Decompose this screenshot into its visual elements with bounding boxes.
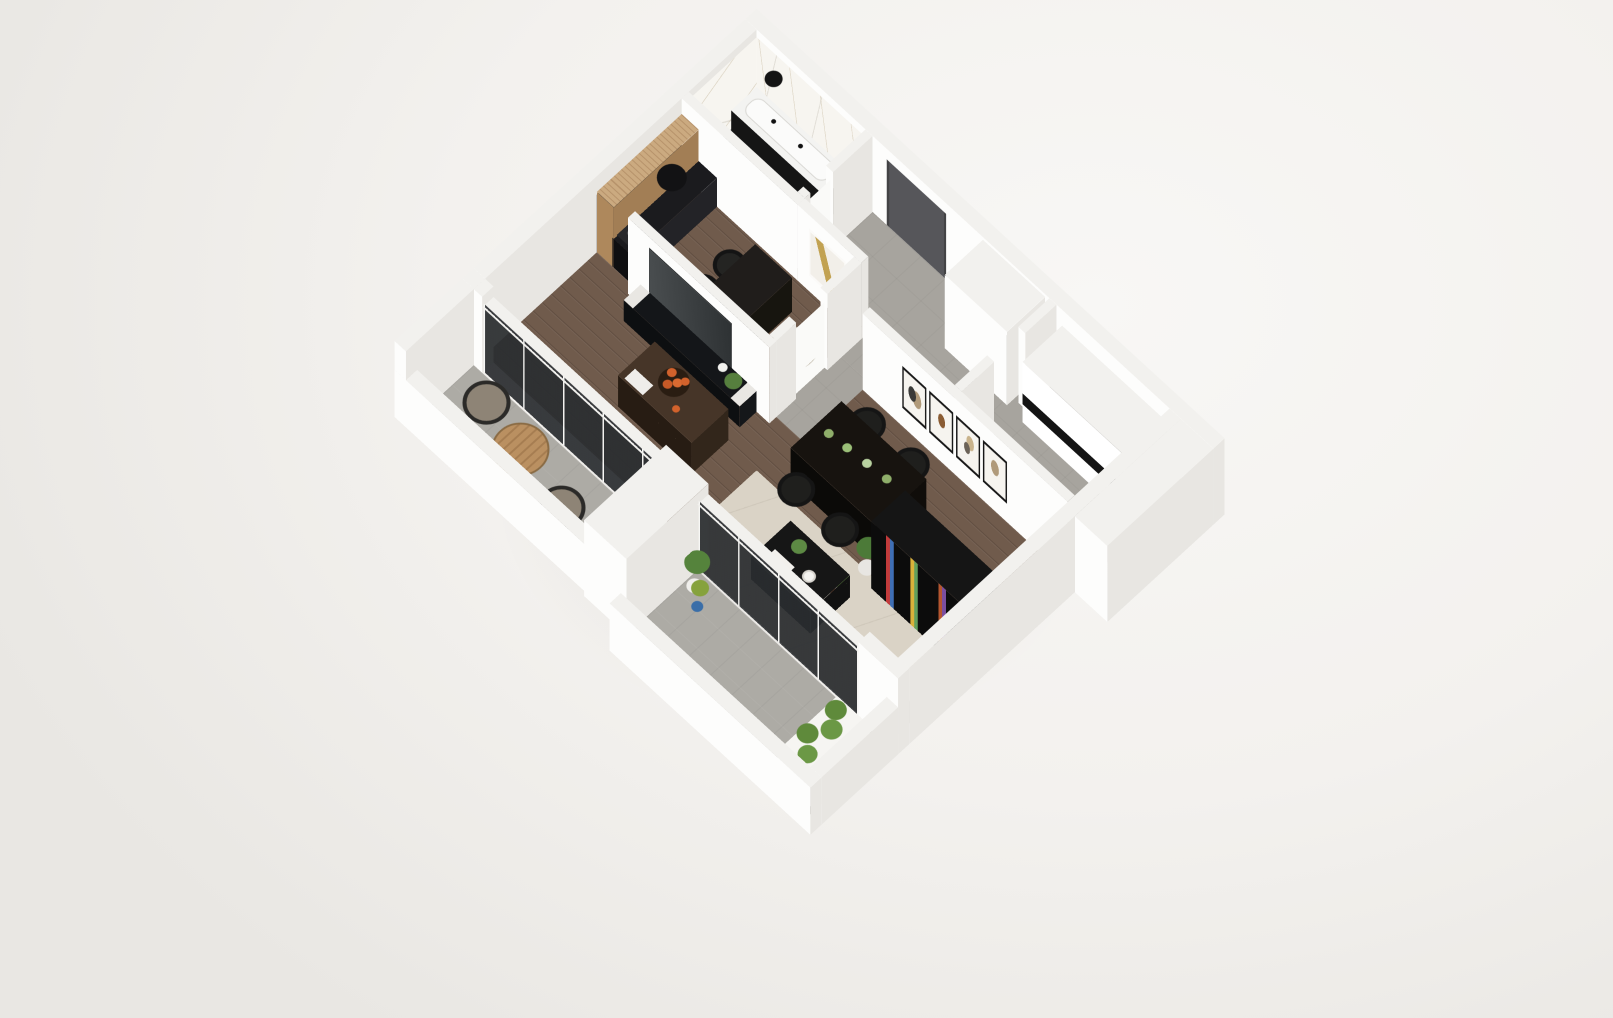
exterior-wall-north-east-face <box>1213 438 1224 524</box>
tv-wall-east-face <box>769 341 776 424</box>
south-balcony-parapet-east-face <box>810 777 821 835</box>
south-wall-pier-east-east-face <box>898 668 909 754</box>
